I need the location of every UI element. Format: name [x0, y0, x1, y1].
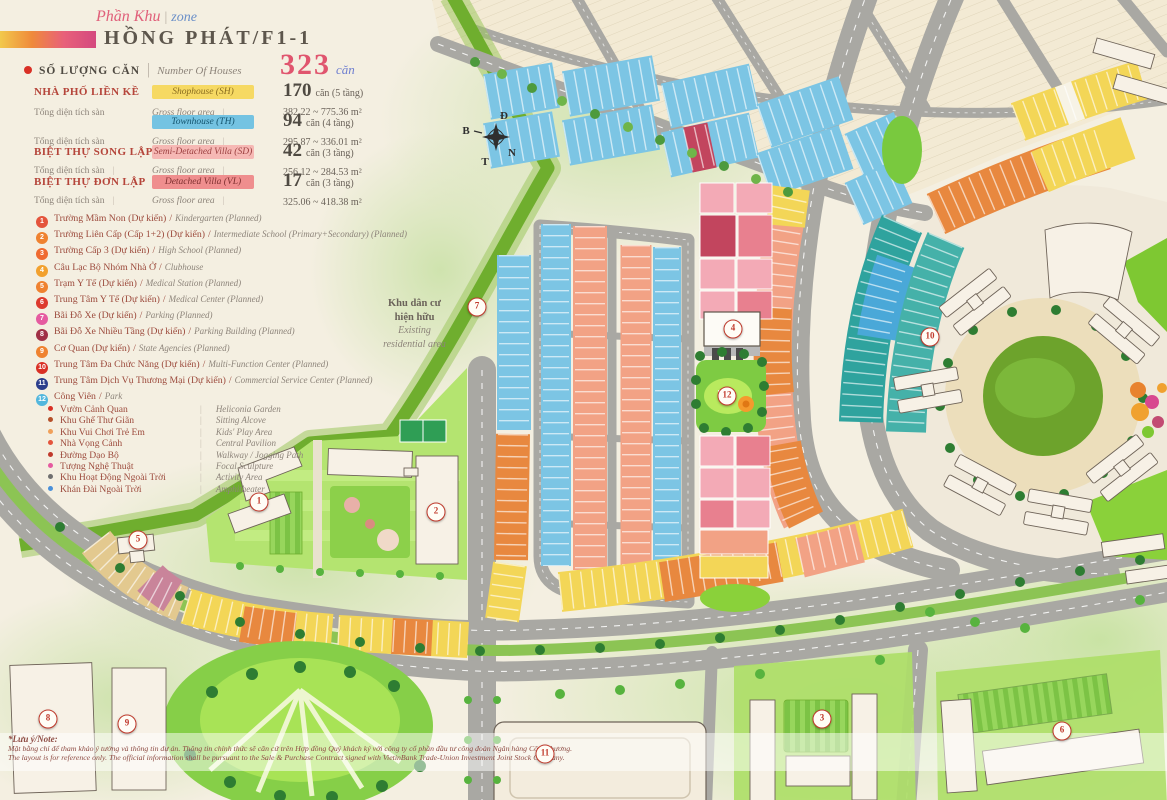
compass-label-left: B	[462, 125, 470, 137]
map-marker[interactable]: 3	[813, 710, 832, 729]
facility-item: 2Trường Liên Cấp (Cấp 1+2) (Dự kiến)/Int…	[36, 225, 407, 241]
map-marker[interactable]: 11	[536, 745, 555, 764]
feature-bullet-icon	[48, 474, 53, 479]
map-marker[interactable]: 12	[718, 387, 737, 406]
total-houses: 323căn	[280, 48, 355, 82]
summary-line: SỐ LƯỢNG CĂN|Number Of Houses	[24, 61, 242, 79]
feature-bullet-icon	[48, 486, 53, 491]
zone-script-vn: Phần Khu	[96, 8, 160, 25]
bullet-icon	[24, 66, 32, 74]
compass-label-right: N	[508, 147, 516, 159]
chip-sd: Semi-Detached Villa (SD)	[152, 145, 254, 159]
note: *Lưu ý/Note: Mặt bằng chỉ để tham khảo ý…	[8, 734, 572, 762]
map-marker[interactable]: 2	[427, 503, 446, 522]
park-feature-item: Khu Ghế Thư Giãn|Sitting Alcove	[48, 413, 303, 424]
row-vl-label: BIỆT THỰ ĐƠN LẬP	[34, 176, 146, 188]
feature-bullet-icon	[48, 406, 53, 411]
facility-item: 12Công Viên/Park	[36, 387, 407, 403]
villa-cluster	[700, 183, 772, 319]
map-marker[interactable]: 9	[118, 715, 137, 734]
stat-vl: 17căn (3 tầng) 325.06 ~ 418.38 m²	[283, 170, 362, 210]
feature-bullet-icon	[48, 417, 53, 422]
chip-shophouse: Shophouse (SH)	[152, 85, 254, 99]
chip-townhouse: Townhouse (TH)	[152, 115, 254, 129]
row-shophouse-label: NHÀ PHỐ LIỀN KỀ	[34, 86, 139, 98]
feature-bullet-icon	[48, 429, 53, 434]
map-marker[interactable]: 5	[129, 531, 148, 550]
park-feature-item: Nhà Vọng Cảnh|Central Pavilion	[48, 436, 303, 447]
brand-gradient-bar	[0, 31, 96, 48]
facility-item: 3Trường Cấp 3 (Dự kiến)/High School (Pla…	[36, 241, 407, 257]
feature-bullet-icon	[48, 440, 53, 445]
facility-item: 11Trung Tâm Dịch Vụ Thương Mại (Dự kiến)…	[36, 371, 407, 387]
facility-badge: 12	[36, 394, 48, 406]
master-plan-page: Đ B N T Phần Khu|zone HỒNG PHÁT/F1-1 SỐ …	[0, 0, 1167, 800]
map-marker[interactable]: 1	[250, 493, 269, 512]
park-feature-item: Vườn Cảnh Quan|Heliconia Garden	[48, 402, 303, 413]
map-marker[interactable]: 4	[724, 320, 743, 339]
park-feature-item: Khu Hoạt Động Ngoài Trời|Activity Area	[48, 470, 303, 481]
facility-item: 1Trường Mầm Non (Dự kiến)/Kindergarten (…	[36, 209, 407, 225]
row-sd-label: BIỆT THỰ SONG LẬP	[34, 146, 153, 158]
page-title: HỒNG PHÁT/F1-1	[104, 27, 312, 50]
feature-bullet-icon	[48, 452, 53, 457]
park-feature-item: Đường Dạo Bộ|Walkway / Jogging Path	[48, 448, 303, 459]
map-marker[interactable]: 7	[468, 298, 487, 317]
existing-area-label: Khu dân cư hiện hữu Existing residential…	[352, 296, 477, 350]
facility-item: 5Trạm Y Tế (Dự kiến)/Medical Station (Pl…	[36, 274, 407, 290]
facility-item: 10Trung Tâm Đa Chức Năng (Dự kiến)/Multi…	[36, 355, 407, 371]
compass-label-bottom: T	[481, 156, 489, 168]
park-feature-item: Khu Vui Chơi Trẻ Em|Kids' Play Area	[48, 425, 303, 436]
map-marker[interactable]: 10	[921, 328, 940, 347]
compass-label-top: Đ	[500, 110, 508, 122]
park-feature-item: Tượng Nghệ Thuật|Focal Sculpture	[48, 459, 303, 470]
park-features-list: Vườn Cảnh Quan|Heliconia Garden Khu Ghế …	[48, 402, 303, 493]
chip-vl: Detached Villa (VL)	[152, 175, 254, 189]
facility-item: 4Câu Lạc Bộ Nhóm Nhà Ở/Clubhouse	[36, 258, 407, 274]
map-marker[interactable]: 6	[1053, 722, 1072, 741]
feature-bullet-icon	[48, 463, 53, 468]
map-marker[interactable]: 8	[39, 710, 58, 729]
zone-script-en: zone	[171, 10, 197, 25]
zone-script-line: Phần Khu|zone	[96, 8, 197, 26]
park-feature-item: Khán Đài Ngoài Trời|Amphitheater	[48, 482, 303, 493]
